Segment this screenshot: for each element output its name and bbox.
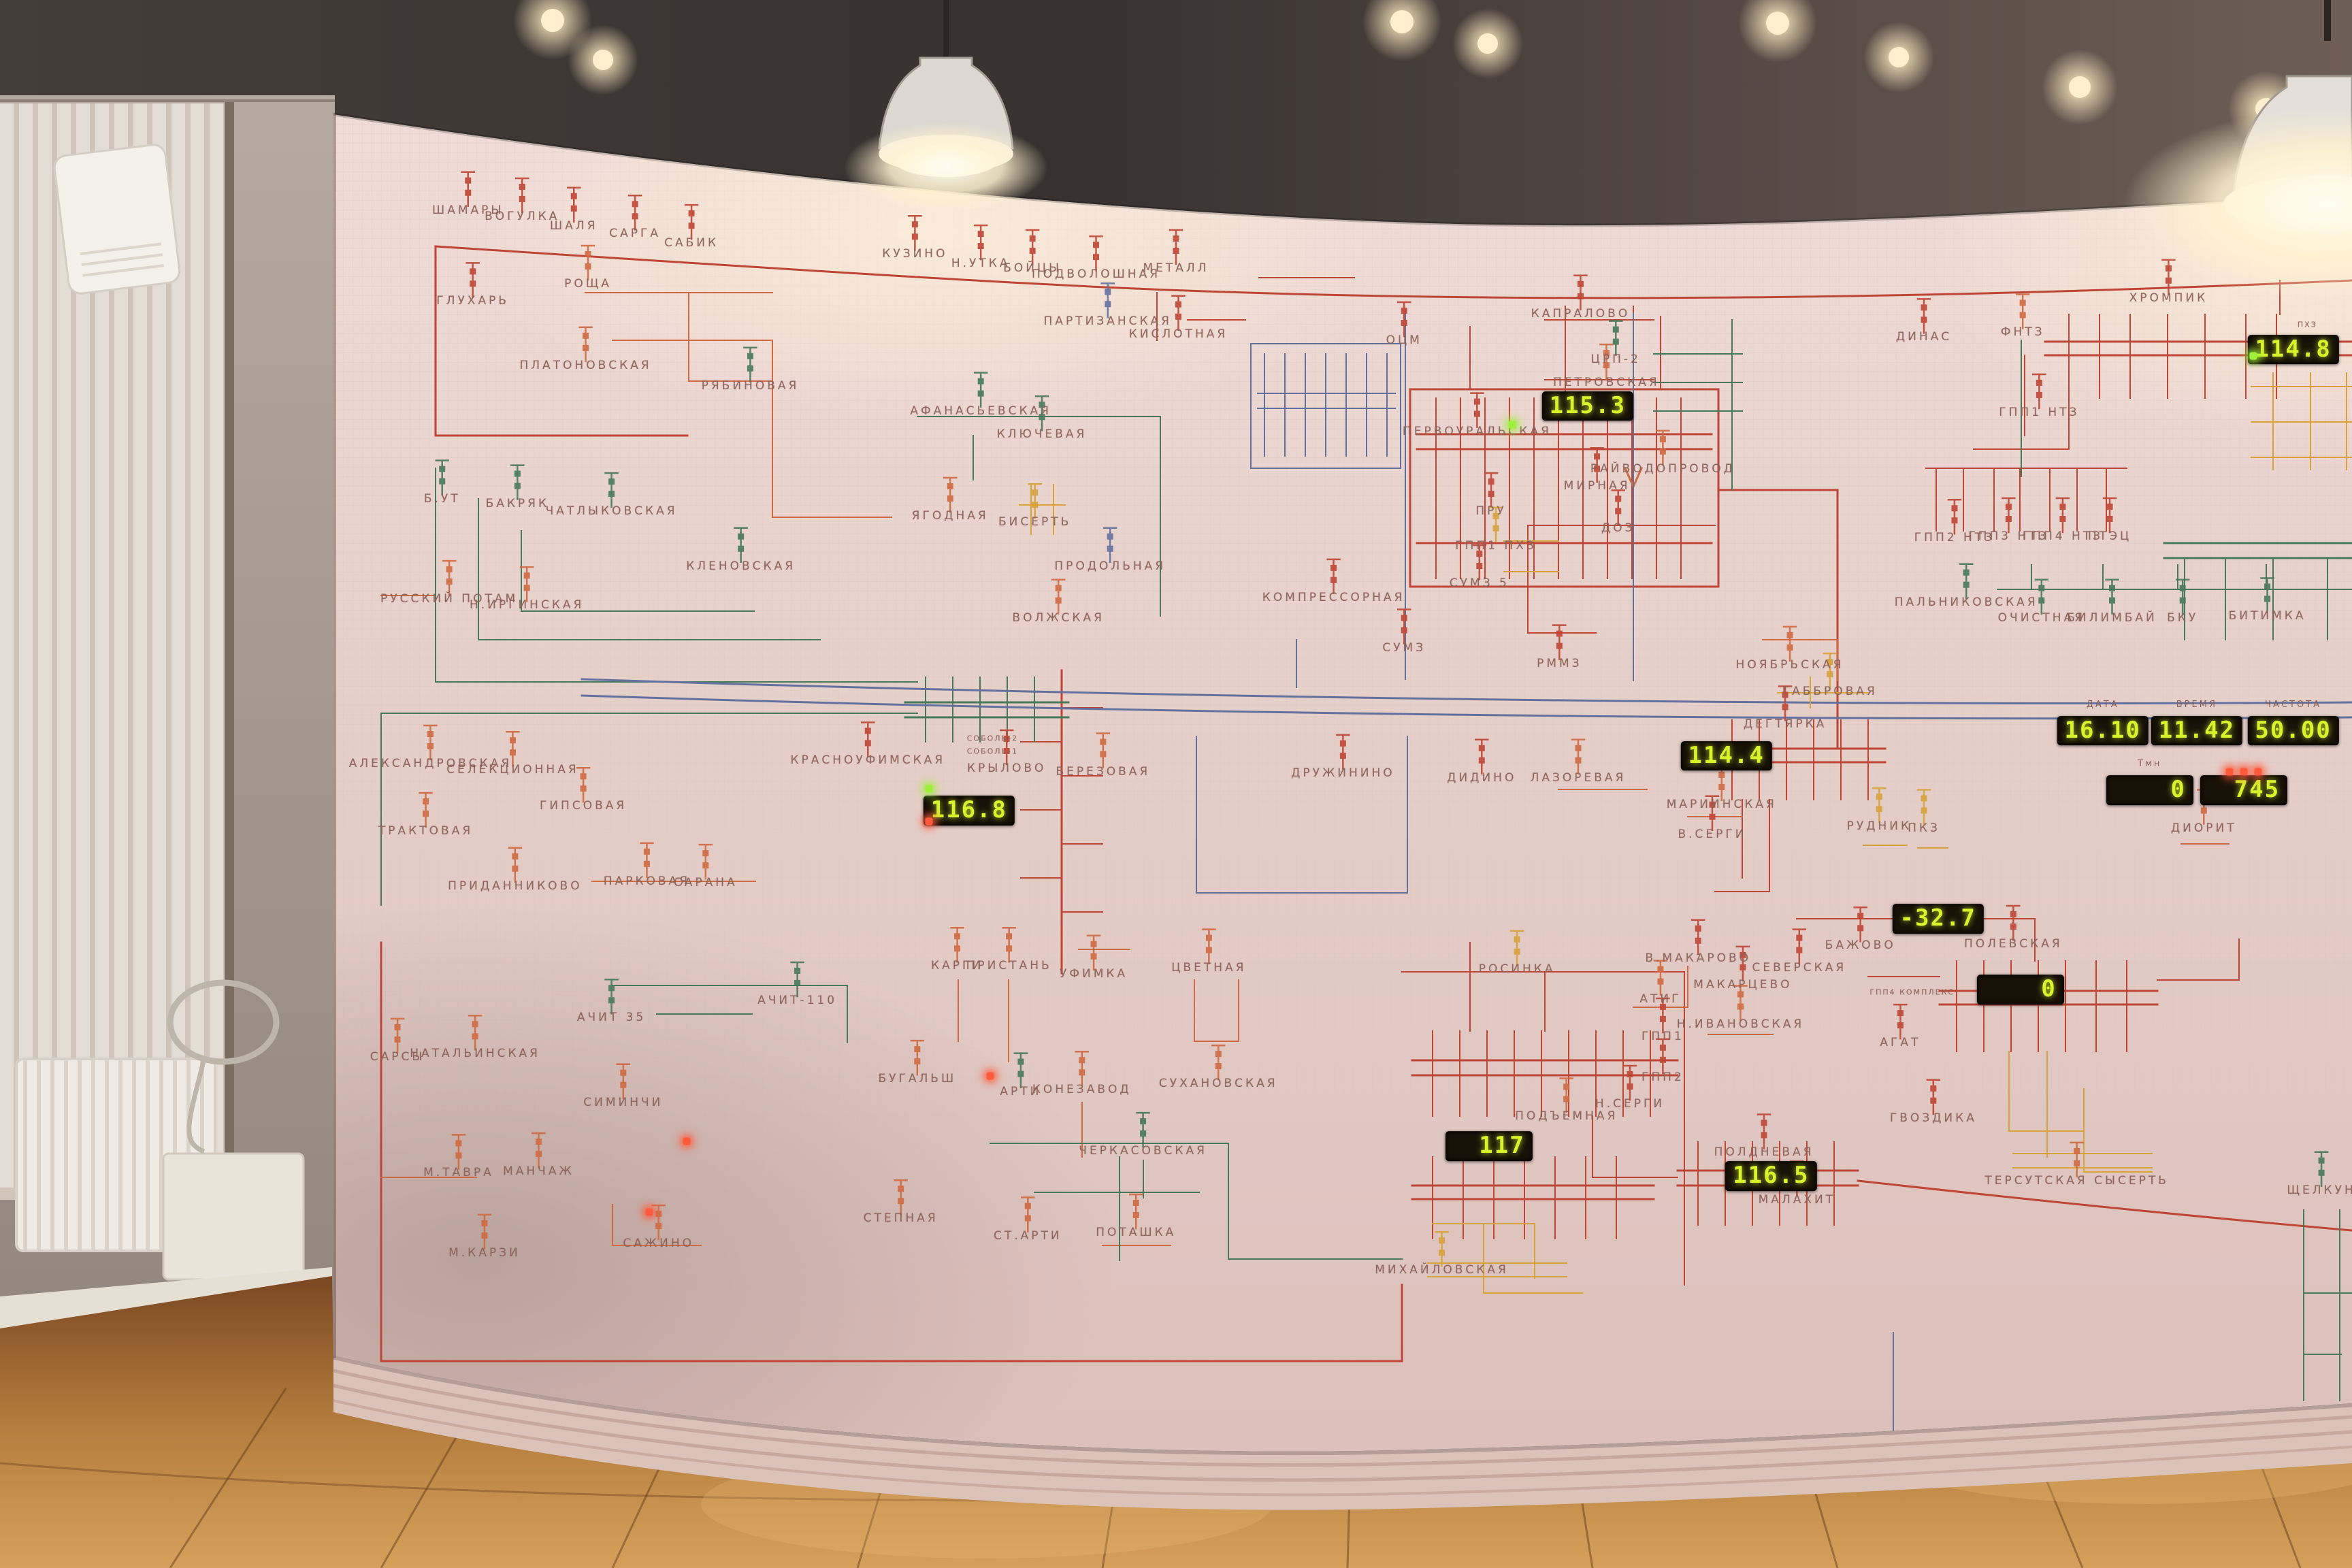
display-value: 116.5 — [1733, 1162, 1809, 1189]
station-label: КАПРАЛОВО — [1531, 307, 1631, 321]
station-label: ГВОЗДИКА — [1890, 1111, 1977, 1125]
station-label: СОБОЛЬ-2 — [967, 734, 1018, 743]
station-label: ЧАТЛЫКОВСКАЯ — [546, 504, 678, 518]
display-value: 114.4 — [1688, 742, 1765, 769]
station-label: АФАНАСЬЕВСКАЯ — [910, 404, 1051, 418]
station-label: Б.УТ — [424, 492, 461, 506]
digital-display: 116.8 — [924, 796, 1015, 826]
digital-display: ДАТА16.10 — [2057, 716, 2148, 746]
station-label: ЛАЗОРЕВАЯ — [1531, 771, 1627, 785]
indicator-led-icon — [2226, 768, 2234, 775]
station-label: САБИК — [664, 236, 719, 250]
station-label: СУМЗ — [1382, 641, 1426, 655]
station-label: СОБОЛЬ-1 — [967, 747, 1018, 755]
station-label: СТ.АРТИ — [994, 1229, 1062, 1243]
station-label: ПКЗ — [1908, 821, 1940, 835]
station-label: ГПП1 ПХЗ — [1455, 539, 1536, 553]
station-label: ПОЛДНЕВАЯ — [1714, 1145, 1814, 1159]
station-label: ГПП1 — [1641, 1030, 1684, 1043]
indicator-led-icon — [1509, 421, 1516, 429]
station-label: ПЕРВОУРАЛЬСКАЯ — [1403, 425, 1552, 438]
indicator-led-icon — [926, 785, 933, 792]
station-label: ДИОРИТ — [2171, 821, 2237, 835]
station-label: ГПП2 — [1641, 1071, 1684, 1084]
digital-display: 114.4 — [1681, 741, 1772, 771]
station-label: ПАЛЬНИКОВСКАЯ — [1895, 595, 2038, 609]
station-label: Н.ИВАНОВСКАЯ — [1677, 1017, 1804, 1031]
station-label: ДИДИНО — [1447, 771, 1516, 785]
display-value: 745 — [2234, 776, 2280, 803]
station-label: ПОЛЕВСКАЯ — [1964, 937, 2063, 951]
station-label: АГАТ — [1880, 1036, 1921, 1049]
station-label: АЧИТ 35 — [577, 1011, 646, 1024]
station-label: НАТАЛЬИНСКАЯ — [410, 1047, 540, 1060]
station-label: В.СЕРГИ — [1678, 828, 1746, 841]
station-label: БЕРЕЗОВАЯ — [1056, 765, 1150, 779]
station-label: М.КАРЗИ — [448, 1246, 521, 1260]
indicator-led-icon — [683, 1138, 691, 1145]
station-label: РУДНИК — [1847, 819, 1912, 833]
display-caption: Тмн — [2138, 759, 2161, 769]
station-label: Н.СЕРГИ — [1595, 1097, 1665, 1111]
station-label: ПОДЪЕМНАЯ — [1515, 1109, 1618, 1123]
display-value: 114.8 — [2255, 336, 2331, 363]
indicator-led-icon — [2254, 768, 2261, 775]
station-label: ГАББРОВАЯ — [1782, 685, 1878, 698]
station-label: ШАЛЯ — [550, 219, 598, 233]
display-caption: ДАТА — [2087, 700, 2119, 710]
display-value: 115.3 — [1550, 392, 1626, 419]
station-label: ПТЭЦ — [2088, 529, 2131, 543]
station-label: СУМЗ 5 — [1450, 576, 1509, 590]
station-label: Н.ИРГИНСКАЯ — [470, 598, 584, 612]
station-label: ПОДВОЛОШНАЯ — [1032, 267, 1160, 281]
display-value: 0 — [2041, 975, 2056, 1002]
indicator-led-icon — [645, 1208, 653, 1215]
indicator-led-icon — [2249, 353, 2257, 360]
station-label: ПОТАШКА — [1096, 1226, 1176, 1239]
station-label: МИРНАЯ — [1564, 479, 1631, 493]
station-label: СИМИНЧИ — [583, 1096, 663, 1109]
station-label: БКУ — [2167, 611, 2198, 625]
station-label: ДОЗ — [1601, 521, 1635, 535]
station-label: М.ТАВРА — [423, 1166, 494, 1179]
station-label: РОСИНКА — [1479, 962, 1556, 976]
digital-display: ЧАСТОТА50.00 — [2247, 716, 2338, 746]
station-label: БУГАЛЬШ — [879, 1072, 957, 1085]
station-label: ГПП4 КОМПЛЕКС — [1869, 988, 1955, 997]
station-label: ПАРТИЗАНСКАЯ — [1044, 314, 1172, 328]
display-value: 11.42 — [2159, 717, 2235, 744]
station-label: МАЛАХИТ — [1759, 1193, 1835, 1207]
station-label: КРЫЛОВО — [967, 762, 1047, 775]
station-label: КЛЕНОВСКАЯ — [686, 559, 796, 573]
station-label: ВОЛЖСКАЯ — [1012, 611, 1105, 625]
digital-display: 116.5 — [1725, 1161, 1816, 1191]
station-label: БИЛИМБАЙ — [2067, 611, 2157, 625]
station-label: ПЕТРОВСКАЯ — [1553, 376, 1660, 389]
station-label: МАКАРЦЕВО — [1693, 978, 1792, 992]
station-label: РЯБИНОВАЯ — [702, 379, 800, 393]
display-value: 16.10 — [2064, 717, 2140, 744]
station-label: РАЙВОДОПРОВОД — [1590, 462, 1735, 476]
station-label: ВОГУЛКА — [485, 210, 559, 223]
digital-display: Тмн0 — [2106, 775, 2193, 805]
station-label: ЯГОДНАЯ — [912, 509, 989, 523]
station-label: КРАСНОУФИМСКАЯ — [790, 753, 945, 767]
station-label: ГИПСОВАЯ — [540, 799, 627, 813]
station-label: СТЕПНАЯ — [864, 1211, 938, 1225]
display-value: 50.00 — [2255, 717, 2331, 744]
station-label: САРАНА — [674, 876, 738, 889]
display-caption: ЧАСТОТА — [2265, 700, 2321, 710]
station-label: САЖИНО — [623, 1237, 694, 1250]
station-label: НОЯБРЬСКАЯ — [1736, 658, 1844, 672]
digital-display: 115.3 — [1542, 391, 1633, 421]
control-room-scene: ШАМАРЫВОГУЛКАШАЛЯСАРГАСАБИККУЗИНОН.УТКАБ… — [0, 0, 2352, 1568]
station-label: АТИГ — [1639, 992, 1681, 1006]
station-label: ПРИДАННИКОВО — [448, 879, 582, 893]
digital-display: 745 — [2200, 775, 2287, 805]
station-label: ТЕРСУТСКАЯ СЫСЕРТЬ — [1984, 1174, 2169, 1188]
station-label: Н.УТКА — [951, 257, 1011, 270]
station-label: РОЩА — [564, 277, 612, 291]
station-label: ХРОМПИК — [2129, 291, 2208, 305]
station-label: УФИМКА — [1060, 967, 1128, 981]
station-label: КОНЕЗАВОД — [1032, 1083, 1132, 1096]
station-label: ПЛАТОНОВСКАЯ — [519, 359, 651, 372]
indicator-led-icon — [986, 1072, 994, 1079]
display-value: 117 — [1479, 1132, 1524, 1159]
station-label: ЧЕРКАСОВСКАЯ — [1079, 1144, 1207, 1158]
digital-display: ВРЕМЯ11.42 — [2151, 716, 2242, 746]
station-label: МЕТАЛЛ — [1143, 261, 1209, 275]
station-label: ГЛУХАРЬ — [436, 294, 509, 308]
station-label: ДЕГТЯРКА — [1744, 717, 1827, 731]
station-label: ЦРП-2 — [1591, 353, 1641, 366]
station-label: КИСЛОТНАЯ — [1129, 327, 1228, 341]
station-label: АЧИТ-110 — [757, 994, 837, 1007]
digital-display: 114.8 — [2247, 335, 2338, 365]
station-label: ПРОДОЛЬНАЯ — [1054, 559, 1166, 573]
station-label: КОМПРЕССОРНАЯ — [1262, 591, 1405, 604]
station-label: ТРАКТОВАЯ — [378, 824, 473, 838]
station-label: БАКРЯК — [486, 497, 550, 510]
station-label: ФНТЗ — [2001, 325, 2045, 339]
digital-display: 0 — [1977, 975, 2064, 1004]
digital-display: 117 — [1445, 1131, 1533, 1161]
station-label: БИСЕРТЬ — [998, 515, 1071, 529]
station-label: САРГА — [609, 227, 661, 240]
station-label: ЩЕЛКУН — [2287, 1183, 2352, 1197]
station-label: МИХАЙЛОВСКАЯ — [1375, 1263, 1509, 1277]
station-label: СЕВЕРСКАЯ — [1752, 961, 1847, 975]
station-label: ГПП1 НТЗ — [1999, 406, 2079, 419]
station-label: ДИНАС — [1896, 330, 1952, 344]
station-label: МАРИИНСКАЯ — [1667, 798, 1777, 811]
display-value: 116.8 — [931, 796, 1007, 823]
station-label: РММЗ — [1537, 657, 1582, 670]
station-label: СУХАНОВСКАЯ — [1159, 1077, 1278, 1090]
station-label: ОЦМ — [1386, 333, 1422, 347]
station-label: ПРИСТАНЬ — [966, 959, 1052, 973]
station-label: БИТИМКА — [2229, 609, 2306, 623]
station-label: КЛЮЧЕВАЯ — [997, 427, 1088, 441]
station-label: МАНЧАЖ — [503, 1164, 574, 1178]
indicator-led-icon — [926, 818, 933, 826]
station-label: ЦВЕТНАЯ — [1171, 961, 1246, 975]
display-caption: ВРЕМЯ — [2176, 700, 2217, 710]
station-label: ДРУЖИНИНО — [1291, 766, 1395, 780]
station-label: ПХЗ — [2298, 320, 2317, 329]
station-label: ПРУ — [1475, 504, 1506, 518]
display-value: 0 — [2170, 776, 2185, 803]
display-value: -32.7 — [1900, 904, 1976, 932]
indicator-led-icon — [2240, 768, 2248, 775]
digital-display: -32.7 — [1893, 904, 1984, 934]
station-label: БАЖОВО — [1825, 938, 1896, 952]
station-label: СЕЛЕКЦИОННАЯ — [446, 763, 579, 777]
mimic-board-overlay: ШАМАРЫВОГУЛКАШАЛЯСАРГАСАБИККУЗИНОН.УТКАБ… — [0, 0, 2352, 1568]
station-label: КУЗИНО — [882, 247, 947, 261]
station-label: В.МАКАРОВО — [1645, 951, 1751, 965]
